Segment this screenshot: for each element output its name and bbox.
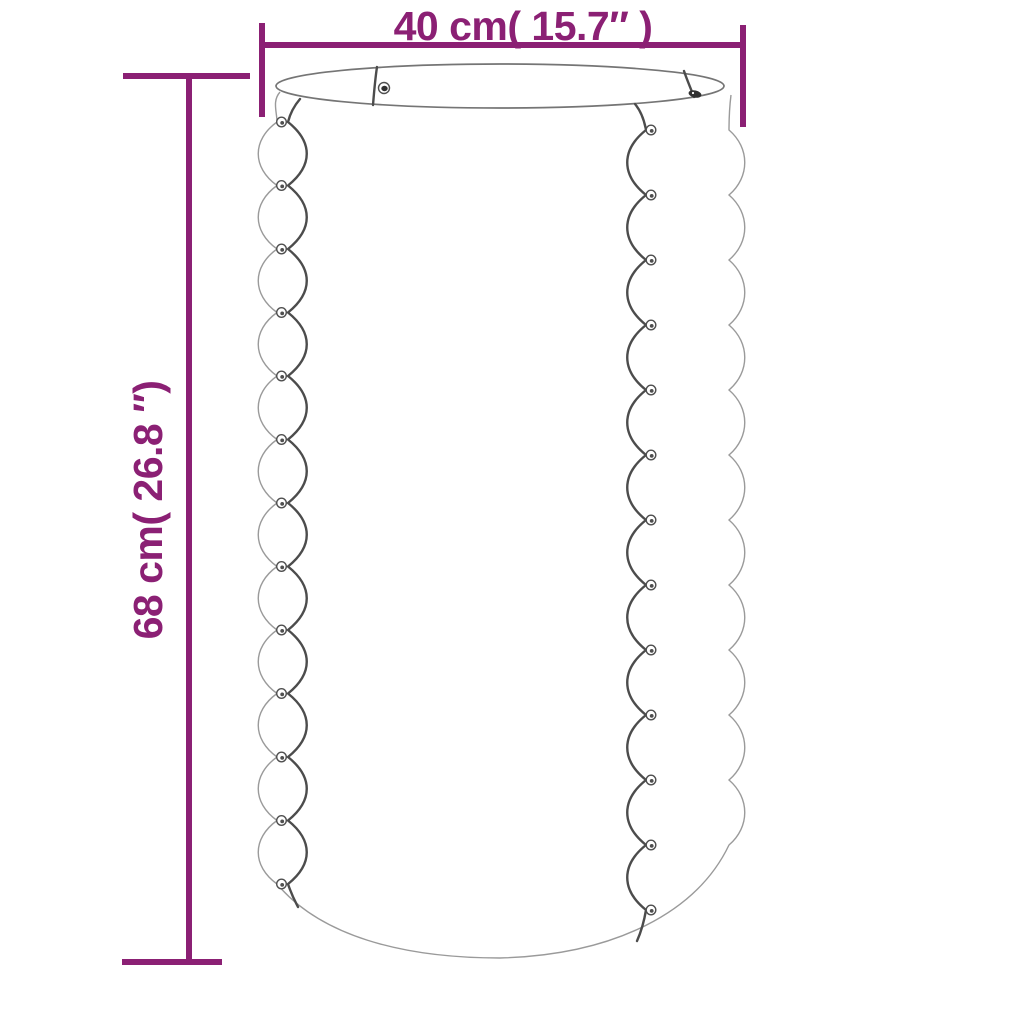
rivet-center [280,502,284,506]
rivet-center [650,844,654,848]
rivet-center [650,519,654,523]
height-dimension-label: 68 cm( 26.8 ″) [125,381,171,640]
rivet-center [280,820,284,824]
rivet-center [650,584,654,588]
rim-rivet-left-icon [379,83,390,94]
planter-drawing [258,64,745,958]
rivet-center [280,248,284,252]
rivet-center [280,375,284,379]
rivet-center [650,324,654,328]
left-panel-seam [288,99,307,907]
planter-rim [276,64,724,108]
planter-outline [258,92,745,958]
product-dimension-diagram: 40 cm( 15.7″ ) 68 cm( 26.8 ″) [0,0,1024,1024]
rivet-center [650,389,654,393]
right-panel-seam [627,104,646,941]
rivet-center [280,693,284,697]
rivet-center [650,714,654,718]
rivet-center [650,454,654,458]
rivet-center [650,649,654,653]
rivet-center [650,909,654,913]
rivet-center [650,259,654,263]
rivet-center [280,439,284,443]
rivet-center [280,629,284,633]
rivet-center [650,194,654,198]
rivets [277,117,656,915]
rivet-center [280,121,284,125]
rivet-center [650,779,654,783]
rivet-center [280,566,284,570]
rivet-center [280,312,284,316]
rivet-center [280,185,284,189]
width-dimension-label: 40 cm( 15.7″ ) [394,3,653,49]
rivet-center [280,883,284,887]
rivet-center [280,756,284,760]
diagram-canvas: 40 cm( 15.7″ ) 68 cm( 26.8 ″) [0,0,1024,1024]
rivet-center [650,129,654,133]
height-dimension: 68 cm( 26.8 ″) [122,73,250,965]
